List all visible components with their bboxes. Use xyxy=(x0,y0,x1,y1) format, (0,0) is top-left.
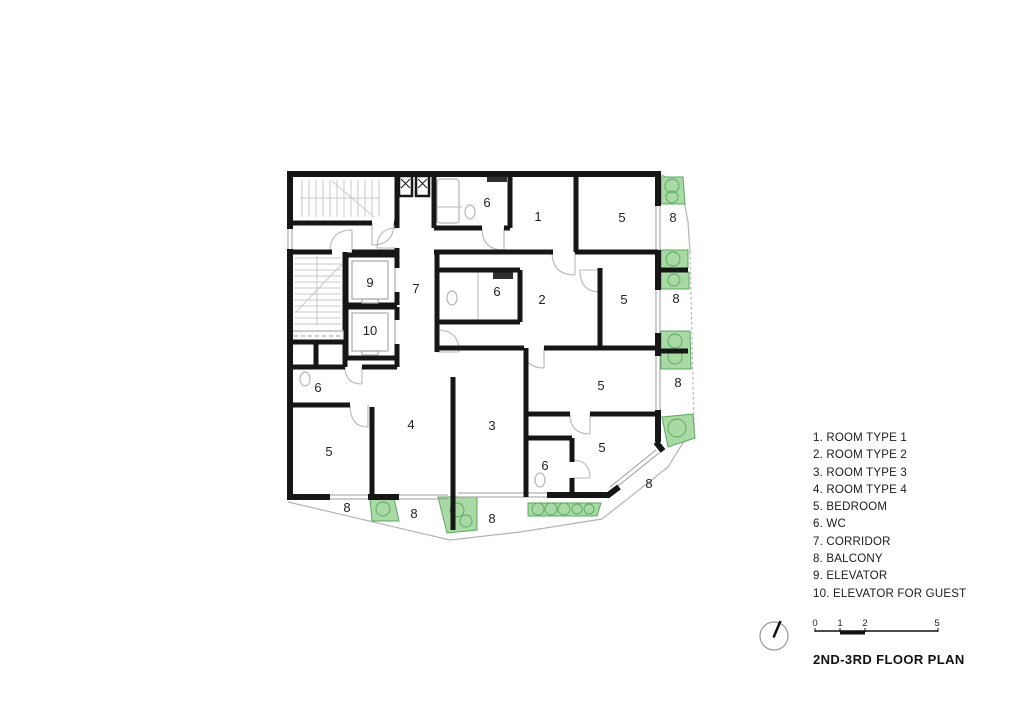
room-label: 1 xyxy=(534,209,541,224)
scale-tick-label: 2 xyxy=(862,618,867,629)
room-label: 8 xyxy=(672,291,679,306)
scale-tick-label: 1 xyxy=(837,618,842,629)
room-label: 6 xyxy=(483,195,490,210)
planter-bushes xyxy=(376,179,686,527)
page: 615897625810658543658888 0125 1. ROOM TY… xyxy=(0,0,1024,724)
scale-bar: 0125 xyxy=(812,618,939,635)
scale-tick-labels: 0125 xyxy=(812,618,939,629)
room-label: 9 xyxy=(366,275,373,290)
legend-item: 4. ROOM TYPE 4 xyxy=(813,482,966,499)
page-title: 2ND-3RD FLOOR PLAN xyxy=(813,652,965,667)
legend-item: 3. ROOM TYPE 3 xyxy=(813,465,966,482)
room-label: 8 xyxy=(410,506,417,521)
legend-item: 6. WC xyxy=(813,516,966,533)
room-label: 5 xyxy=(620,292,627,307)
staircase-top xyxy=(300,180,380,217)
legend-item: 5. BEDROOM xyxy=(813,499,966,516)
room-label: 8 xyxy=(343,500,350,515)
room-label: 10 xyxy=(363,323,377,338)
legend-item: 9. ELEVATOR xyxy=(813,568,966,585)
room-label: 5 xyxy=(597,378,604,393)
staircase-left xyxy=(294,256,342,326)
room-label: 7 xyxy=(412,281,419,296)
room-label: 5 xyxy=(598,440,605,455)
north-indicator-icon xyxy=(760,621,788,650)
legend-item: 8. BALCONY xyxy=(813,551,966,568)
room-label: 4 xyxy=(407,417,414,432)
room-label: 6 xyxy=(541,458,548,473)
room-label: 8 xyxy=(674,375,681,390)
legend: 1. ROOM TYPE 12. ROOM TYPE 23. ROOM TYPE… xyxy=(813,430,966,603)
legend-item: 1. ROOM TYPE 1 xyxy=(813,430,966,447)
legend-item: 2. ROOM TYPE 2 xyxy=(813,447,966,464)
room-label: 3 xyxy=(488,418,495,433)
exterior-walls xyxy=(287,171,663,500)
legend-list: 1. ROOM TYPE 12. ROOM TYPE 23. ROOM TYPE… xyxy=(813,430,966,603)
room-label: 8 xyxy=(645,476,652,491)
floor-plan-drawing: 615897625810658543658888 0125 xyxy=(0,0,1024,724)
room-label: 6 xyxy=(314,380,321,395)
legend-item: 10. ELEVATOR FOR GUEST xyxy=(813,586,966,603)
scale-tick-label: 0 xyxy=(812,618,817,629)
room-label: 6 xyxy=(493,284,500,299)
room-label: 2 xyxy=(538,292,545,307)
room-label: 5 xyxy=(325,444,332,459)
room-label: 8 xyxy=(669,210,676,225)
room-label: 5 xyxy=(618,210,625,225)
legend-item: 7. CORRIDOR xyxy=(813,534,966,551)
service-shaft-boxes xyxy=(399,176,429,196)
scale-tick-label: 5 xyxy=(934,618,939,629)
room-label: 8 xyxy=(488,511,495,526)
